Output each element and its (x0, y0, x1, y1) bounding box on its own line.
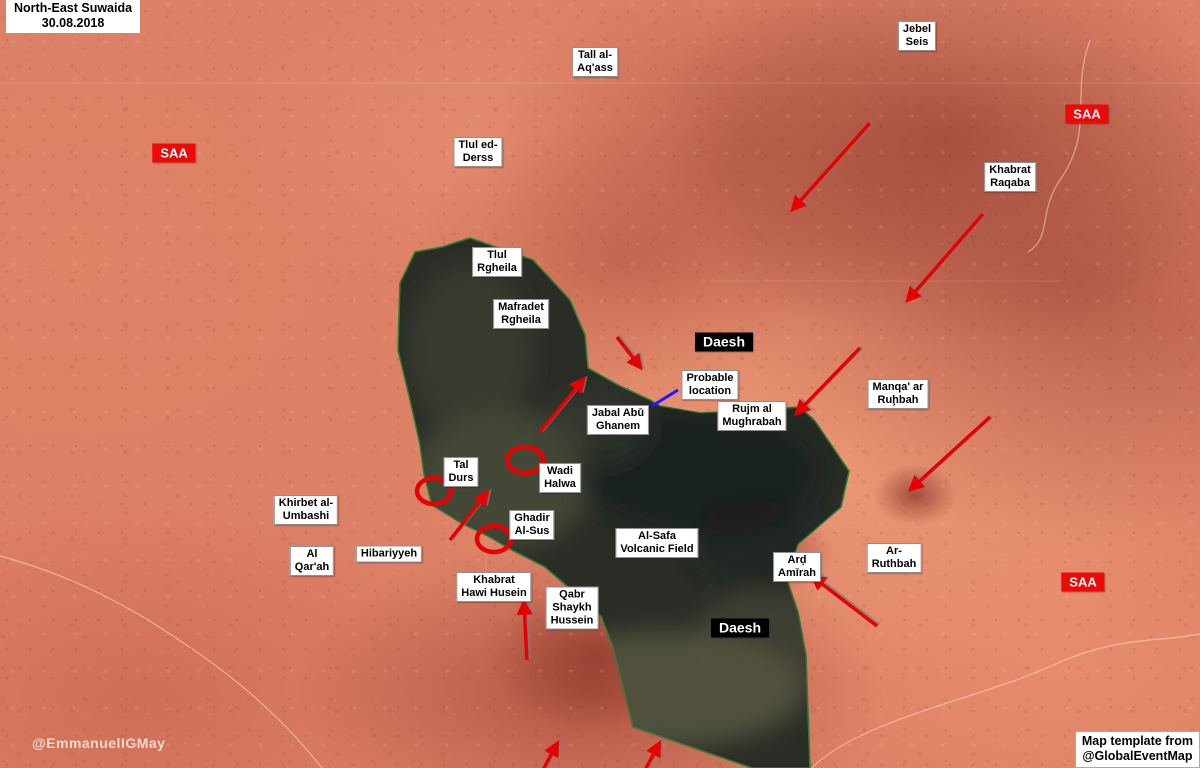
label-text: Mughrabah (722, 416, 781, 429)
label-text: Khirbet al- (279, 497, 333, 510)
label-text: Rgheila (498, 314, 544, 327)
label-text: Khabrat (989, 164, 1031, 177)
label-text: Mafradet (498, 301, 544, 314)
faction-label-saa-northeast: SAA (1065, 105, 1108, 124)
label-text: Qar'ah (295, 561, 329, 574)
label-text: Al (295, 548, 329, 561)
map-title-line1: North-East Suwaida (14, 1, 132, 16)
label-text: Tlul ed- (458, 139, 497, 152)
arrow-khabrat-hawi (524, 603, 527, 660)
label-text: Jebel (903, 23, 931, 36)
arrow-north-center (793, 123, 870, 209)
label-text: Jabal Abū (592, 407, 644, 420)
place-label-qabr-shaykh-hussein: QabrShaykhHussein (546, 587, 599, 630)
arrow-south-right (645, 744, 659, 768)
label-text: Hibariyyeh (361, 548, 417, 561)
faction-label-saa-west: SAA (152, 144, 195, 163)
place-label-jebel-seis: JebelSeis (898, 21, 936, 51)
road-northeast (1028, 40, 1090, 252)
label-text: Seis (903, 36, 931, 49)
arrow-manqa-ruhbah (911, 417, 990, 489)
label-text: Tlul (477, 249, 517, 262)
probable-location-link-group (652, 390, 678, 406)
probable-location-link-line (652, 390, 678, 406)
faction-label-daesh-north: Daesh (695, 333, 753, 352)
place-label-wadi-halwa: WadiHalwa (539, 463, 581, 493)
label-text: Manqa' ar (873, 381, 924, 394)
label-text: Halwa (544, 478, 576, 491)
place-label-jabal-abu-ghanem: Jabal AbūGhanem (587, 405, 649, 435)
label-text: Derss (458, 152, 497, 165)
faction-label-saa-southeast: SAA (1061, 573, 1104, 592)
template-credit-line2: @GlobalEventMap (1082, 749, 1193, 764)
template-credit: Map template from @GlobalEventMap (1075, 731, 1200, 768)
label-text: Ar- (872, 545, 917, 558)
place-label-khabrat-hawi-husein: KhabratHawi Husein (456, 572, 531, 602)
label-text: Wadi (544, 465, 576, 478)
label-text: Rujm al (722, 403, 781, 416)
map-date: 30.08.2018 (14, 16, 132, 31)
label-text: Rgheila (477, 262, 517, 275)
map-canvas: North-East Suwaida 30.08.2018 Tall al-Aq… (0, 0, 1200, 768)
label-text: Al-Safa (620, 530, 693, 543)
faction-label-daesh-south: Daesh (711, 619, 769, 638)
label-text: Raqaba (989, 177, 1031, 190)
map-overlay (0, 0, 1200, 768)
place-label-tlul-rgheila: TlulRgheila (472, 247, 522, 277)
arrow-rujm-mughrabah (797, 348, 860, 413)
place-label-al-safa-volcanic-field: Al-SafaVolcanic Field (615, 528, 698, 558)
label-text: Amīrah (778, 567, 816, 580)
arrow-south-left (543, 744, 557, 768)
map-title: North-East Suwaida 30.08.2018 (6, 0, 140, 33)
arrow-khabrat-raqaba (908, 214, 983, 300)
author-watermark: @EmmanuelIGMay (32, 735, 165, 751)
label-text: Ghadir (514, 512, 549, 525)
place-label-khirbet-al-umbashi: Khirbet al-Umbashi (274, 495, 338, 525)
place-label-hibariyyeh: Hibariyyeh (356, 546, 422, 563)
label-text: Volcanic Field (620, 543, 693, 556)
place-label-manqa-ar-ruhbah: Manqa' arRuḩbah (868, 379, 929, 409)
label-text: Ruthbah (872, 558, 917, 571)
arrow-daesh-north-small (617, 337, 640, 367)
label-text: Al-Sus (514, 525, 549, 538)
place-label-mafradet-rgheila: MafradetRgheila (493, 299, 549, 329)
place-label-rujm-al-mughrabah: Rujm alMughrabah (717, 401, 786, 431)
label-text: Ruḩbah (873, 394, 924, 407)
label-text: Aq'ass (577, 62, 613, 75)
label-text: Khabrat (461, 574, 526, 587)
place-label-tlul-ed-derss: Tlul ed-Derss (453, 137, 502, 167)
label-text: Tall al- (577, 49, 613, 62)
arrow-ard-amirah (813, 577, 877, 626)
template-credit-line1: Map template from (1082, 734, 1193, 749)
place-label-tall-al-aqass: Tall al-Aq'ass (572, 47, 618, 77)
place-label-ard-amirah: ArḑAmīrah (773, 552, 821, 582)
label-text: Durs (448, 472, 473, 485)
label-text: Hawi Husein (461, 587, 526, 600)
territory-texture-blob (408, 265, 532, 435)
label-text: Shaykh (551, 602, 594, 615)
label-text: Tal (448, 459, 473, 472)
label-text: location (686, 385, 733, 398)
daesh-territory-group (398, 238, 850, 768)
place-label-probable-location: Probablelocation (681, 370, 738, 400)
place-label-ar-ruthbah: Ar-Ruthbah (867, 543, 922, 573)
territory-texture-blob (690, 592, 850, 688)
label-text: Umbashi (279, 510, 333, 523)
place-label-khabrat-raqaba: KhabratRaqaba (984, 162, 1036, 192)
place-label-tal-durs: TalDurs (443, 457, 478, 487)
label-text: Hussein (551, 615, 594, 628)
place-label-al-qarah: AlQar'ah (290, 546, 334, 576)
label-text: Arḑ (778, 554, 816, 567)
place-label-ghadir-al-sus: GhadirAl-Sus (509, 510, 554, 540)
label-text: Probable (686, 372, 733, 385)
label-text: Qabr (551, 589, 594, 602)
label-text: Ghanem (592, 420, 644, 433)
